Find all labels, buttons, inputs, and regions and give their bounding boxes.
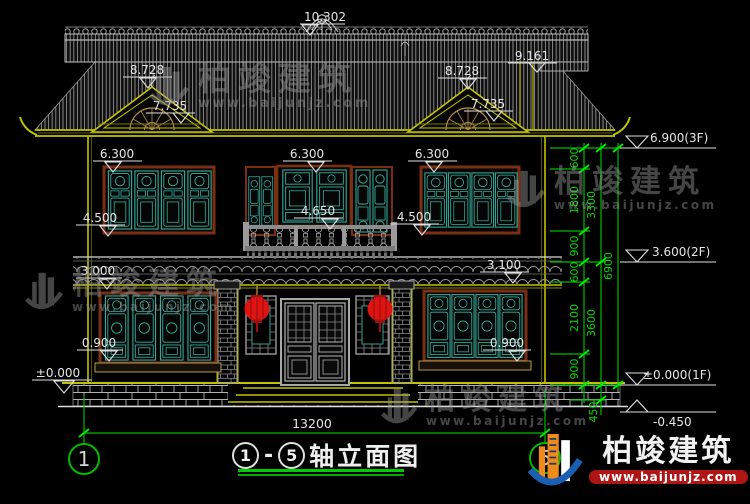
label-f1-left-sill: 0.900 xyxy=(82,336,116,350)
window-2f-flank-left xyxy=(246,167,275,235)
label-gable-right-lower: 7.735 xyxy=(471,97,505,111)
dim-13200: 13200 xyxy=(292,416,332,431)
marker-level-below xyxy=(620,400,716,412)
title-text: 轴立面图 xyxy=(309,437,421,473)
window-1f-left xyxy=(95,293,221,372)
dim-3300: 3300 xyxy=(585,191,598,219)
label-f1-right-head: 3.100 xyxy=(487,258,521,272)
axis-1-label: 1 xyxy=(78,447,91,471)
dim-1800: 1800 xyxy=(568,186,581,214)
title-axis-to: 5 xyxy=(278,442,305,469)
dim-900a: 900 xyxy=(568,236,581,257)
label-f2-left-sill: 4.500 xyxy=(83,211,117,225)
dim-450: 450 xyxy=(587,402,600,423)
dim-600b: 600 xyxy=(568,262,581,283)
cad-elevation-canvas: 600 1800 900 600 2100 900 3300 3600 450 … xyxy=(0,0,750,504)
brand-name: 柏竣建筑 xyxy=(602,437,734,467)
label-level-3f: 6.900(3F) xyxy=(650,131,708,145)
axis-bubble-1: 1 xyxy=(69,444,99,474)
window-2f-flank-right xyxy=(352,167,392,235)
label-level-2f: 3.600(2F) xyxy=(652,245,710,259)
entrance-steps xyxy=(228,384,418,405)
label-f2-right-head: 6.300 xyxy=(415,147,449,161)
title-underline-thick xyxy=(238,469,404,472)
label-balcony: 4.650 xyxy=(301,204,335,218)
dim-900b: 900 xyxy=(568,359,581,380)
window-2f-left xyxy=(104,167,214,233)
balcony-railing xyxy=(243,222,397,257)
dim-600a: 600 xyxy=(568,148,581,169)
label-ridge: 10.302 xyxy=(304,10,346,24)
door-1f-main xyxy=(281,299,349,385)
title-underline-thin xyxy=(238,474,404,476)
brand-url: www.baijunjz.com xyxy=(589,470,748,484)
label-f2-center-head: 6.300 xyxy=(290,147,324,161)
label-ground-left: ±0.000 xyxy=(36,366,80,380)
brand-logo: 柏竣建筑 www.baijunjz.com xyxy=(527,429,748,491)
title-axis-from: 1 xyxy=(232,442,259,469)
label-f2-left-head: 6.300 xyxy=(100,147,134,161)
title-dash: - xyxy=(264,443,273,468)
dim-2100: 2100 xyxy=(568,304,581,332)
label-f2-right-sill: 4.500 xyxy=(397,210,431,224)
dim-6900: 6900 xyxy=(602,252,615,280)
label-gable-left-lower: 7.735 xyxy=(153,99,187,113)
label-level-1f: ±0.000(1F) xyxy=(643,368,711,382)
label-gable-right-upper: 8.728 xyxy=(445,64,479,78)
brand-logo-icon xyxy=(527,429,583,491)
label-f1-left-head: 3.000 xyxy=(81,264,115,278)
window-2f-right xyxy=(421,167,519,233)
porch-column-right xyxy=(389,281,414,383)
drawing-title: 1 - 5 轴立面图 xyxy=(232,437,421,473)
dim-3600: 3600 xyxy=(585,309,598,337)
label-right-eave: 9.161 xyxy=(515,49,549,63)
label-level-below: -0.450 xyxy=(653,415,692,429)
label-f1-right-sill: 0.900 xyxy=(490,336,524,350)
label-gable-left-upper: 8.728 xyxy=(130,63,164,77)
